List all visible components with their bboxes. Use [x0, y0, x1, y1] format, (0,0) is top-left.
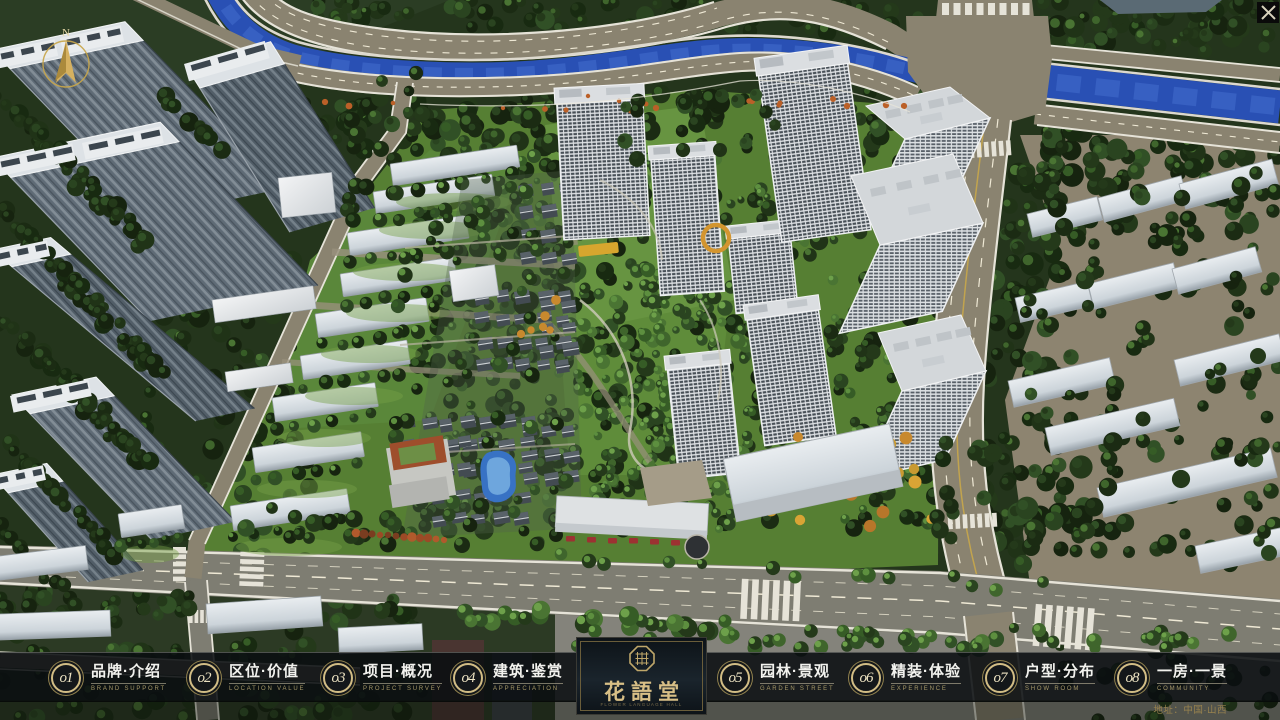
svg-text:N: N	[62, 27, 70, 39]
